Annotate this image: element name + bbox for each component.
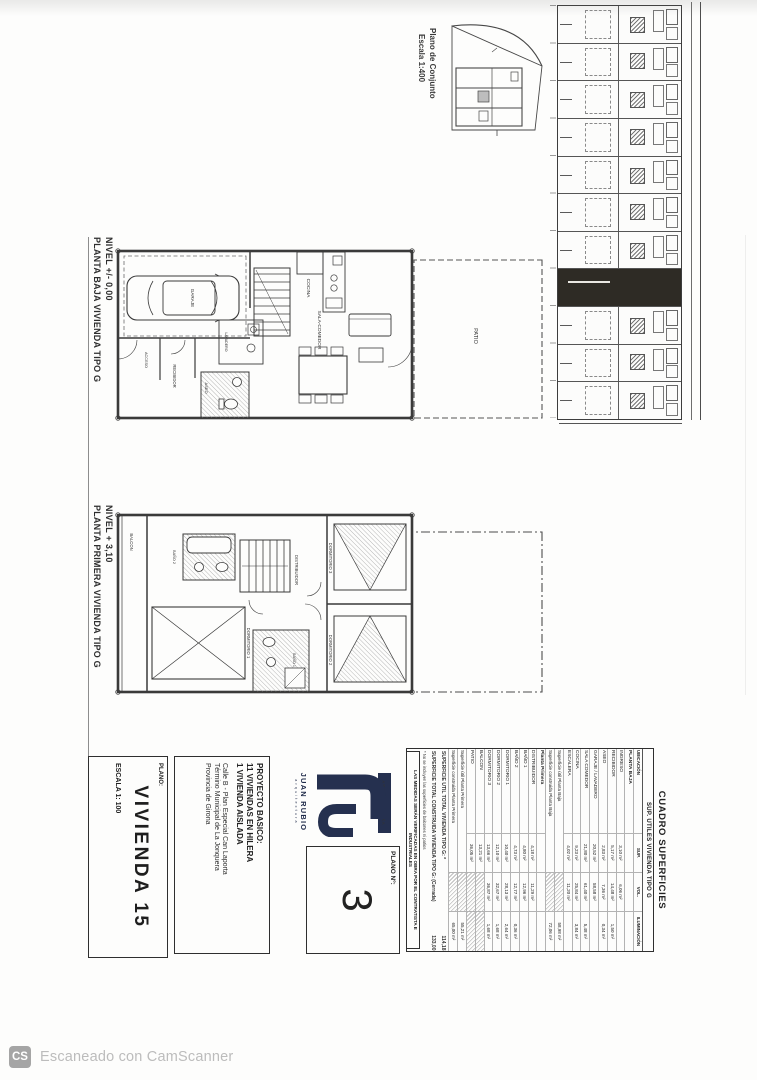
strip-end-line <box>559 423 682 424</box>
room-label-dormitorio-3: DORMITORIO 3 <box>328 543 333 574</box>
row-house-unit-highlighted <box>558 269 681 307</box>
areas-table: CUADRO SUPERFICIES SUP. UTILES VIVIENDA … <box>407 748 667 952</box>
room-label-distribuidor: DISTRIBUIDOR <box>294 555 299 585</box>
scanned-architectural-sheet: Plano de Conjunto Escala 1:400 <box>0 0 757 1080</box>
camscanner-badge-icon: CS <box>9 1046 31 1068</box>
table-row: Planta Primera <box>536 749 545 951</box>
architect-logo-glyph: ARQUITECTURA <box>315 767 393 837</box>
table-row: SUPERFICIE TOTAL CONSTRUIDA VIVIENDA TIP… <box>428 749 438 951</box>
scan-paper-crease <box>745 235 746 695</box>
first-floor-plan: DORMITORIO 3 DORMITORIO 2 DISTRIBUIDOR B… <box>115 512 545 695</box>
room-label-dormitorio-2: DORMITORIO 2 <box>328 635 333 666</box>
logo-name-text: JUAN RUBIO <box>299 758 308 846</box>
project-address-3: Provincia de Girona <box>205 763 212 947</box>
row-house-unit <box>558 232 681 270</box>
project-line-2: 1 VIVIENDA AISLADA <box>235 763 244 947</box>
table-row: INGRESO3,10 m²6,06 m² <box>616 749 625 951</box>
sheet-number-box: PLANO Nº: 3 <box>306 846 400 954</box>
table-row: ASEO2,83 m²7,36 m²0,34 m² <box>598 749 607 951</box>
table-row: DORMITORIO 313,66 m²36,87 m²1,68 m² <box>484 749 493 951</box>
table-row: GARAJE / LAVADERO20,52 m²58,58 m² <box>589 749 598 951</box>
patio-boundary <box>414 260 542 418</box>
table-row: DORMITORIO 212,10 m²32,67 m²1,68 m² <box>492 749 501 951</box>
first-floor-caption-line1: NIVEL + 3,10 <box>104 505 114 563</box>
row-houses-site-strip <box>557 5 682 420</box>
row-house-unit <box>558 81 681 119</box>
patio-void-boundary <box>412 532 542 692</box>
table-row: RECIBIDOR5,17 m²14,48 m²1,50 m² <box>607 749 616 951</box>
row-house-unit <box>558 119 681 157</box>
table-row: SALA COMEDOR21,80 m²61,40 m²5,48 m² <box>580 749 589 951</box>
table-row: PATIO36,05 m² <box>466 749 475 951</box>
room-label-acceso: ACCESO <box>144 352 148 368</box>
row-house-unit <box>558 157 681 195</box>
bed-dormitorio-1 <box>152 607 245 679</box>
toilet-room <box>201 372 249 418</box>
room-label-sala-comedor: SALA-COMEDOR <box>316 311 322 350</box>
site-overview-sketch <box>440 12 552 137</box>
project-line-1: 11 VIVIENDAS EN HILERA <box>245 763 254 947</box>
sheet-scale-text: ESCALA 1: 100 <box>114 763 121 951</box>
table-row: DORMITORIO 110,40 m²28,13 m²2,64 m² <box>501 749 510 951</box>
room-label-patio: PATIO <box>472 328 478 344</box>
car-symbol <box>127 274 239 322</box>
table-row: ESCALERA4,02 m²11,20 m² <box>563 749 572 951</box>
areas-table-frame: SUP. UTILES VIVIENDA TIPO G UBICACIÓNSUP… <box>406 748 654 952</box>
areas-table-footnote: * No se incluyen las superficies de balc… <box>421 749 428 951</box>
camscanner-watermark-text: Escaneado con CamScanner <box>40 1049 233 1065</box>
architect-logo: ARQUITECTURA JUAN RUBIO arquitectura <box>279 758 393 846</box>
bathroom-2 <box>183 534 235 580</box>
street-line-outer <box>700 2 701 420</box>
table-row: Superficie útil Planta Baja58,98 m² <box>554 749 563 951</box>
row-house-unit <box>558 194 681 232</box>
sheet-number-label: PLANO Nº: <box>389 847 399 953</box>
bed-dormitorio-3 <box>334 524 406 590</box>
row-house-unit <box>558 44 681 82</box>
site-overview-caption-line1: Plano de Conjunto <box>428 28 437 99</box>
project-address-2: Término Municipal de La Jonquera <box>213 763 220 947</box>
table-row: DISTRIBUIDOR4,18 m²11,29 m² <box>528 749 537 951</box>
sheet-title-label: PLANO: <box>157 763 163 951</box>
table-row: PLANTA BAJA <box>624 749 633 951</box>
room-label-lavadero: LAVADERO <box>224 332 228 351</box>
row-house-unit <box>558 307 681 345</box>
table-row: SUPERFICIE UTIL TOTAL VIVIENDA TIPO G: *… <box>438 749 448 951</box>
room-label-cocina: COCINA <box>305 279 311 298</box>
room-label-recibidor: RECIBIDOR <box>172 364 177 387</box>
bed-dormitorio-2 <box>334 616 406 682</box>
stairs-ground-floor <box>254 268 290 336</box>
room-label-dormitorio-1: DORMITORIO 1 <box>246 628 251 659</box>
table-row: Superficie útil Planta Primera55,21 m² <box>457 749 466 951</box>
scan-shadow-top-edge <box>0 0 757 16</box>
table-row: BAÑO 14,80 m²12,96 m² <box>519 749 528 951</box>
room-label-balcon: BALCON <box>129 533 134 550</box>
bathroom-1 <box>253 630 309 692</box>
areas-table-subtitle: SUP. UTILES VIVIENDA TIPO G <box>642 749 653 951</box>
table-row: COCINA9,23 m²25,84 m²3,84 m² <box>572 749 581 951</box>
project-box: PROYECTO BASICO: 11 VIVIENDAS EN HILERA … <box>174 756 270 954</box>
sheet-number-value: 3 <box>333 847 381 953</box>
first-floor-caption-line2: PLANTA PRIMERA VIVIENDA TIPO G <box>92 505 102 668</box>
stairs-first-floor <box>240 540 290 592</box>
site-overview-caption-line2: Escala 1:400 <box>417 34 426 82</box>
ground-floor-plan: PATIO GARAJE LAVADERO COCINA SALA-COMEDO… <box>115 248 545 421</box>
rotated-drawing-sheet: Plano de Conjunto Escala 1:400 <box>0 0 757 1080</box>
project-heading: PROYECTO BASICO: <box>255 763 264 947</box>
table-row: BALCON13,21 m² <box>475 749 484 951</box>
row-house-unit <box>558 345 681 383</box>
areas-table-disclaimer: LAS MEDIDAS SERÁN VERIFICADAS EN OBRA PO… <box>406 751 420 949</box>
areas-table-grid: UBICACIÓNSUP.VOL.ILUMINACIÓNPLANTA BAJAI… <box>448 749 642 951</box>
corner-markers <box>116 249 415 421</box>
street-line-inner <box>691 2 692 420</box>
sheet-title-box: PLANO: VIVIENDA 15 ESCALA 1: 100 <box>88 756 168 958</box>
project-address-1: Calle B - Plan Especial Can Laporta <box>222 763 229 947</box>
areas-table-title: CUADRO SUPERFICIES <box>656 748 667 952</box>
living-room-furniture <box>299 314 391 403</box>
areas-table-grand-totals: SUPERFICIE UTIL TOTAL VIVIENDA TIPO G: *… <box>428 749 448 951</box>
table-row: BAÑO 24,73 m²12,77 m²0,36 m² <box>510 749 519 951</box>
ground-floor-caption-line2: PLANTA BAJA VIVIENDA TIPO G <box>92 237 102 382</box>
table-row: UBICACIÓNSUP.VOL.ILUMINACIÓN <box>633 749 642 951</box>
room-label-bano-2: BAÑO 2 <box>172 550 177 564</box>
logo-subtitle-text: arquitectura <box>294 758 298 846</box>
row-house-unit <box>558 382 681 419</box>
ground-floor-caption-line1: NIVEL +/- 0,00 <box>104 237 114 301</box>
table-row: Superficie construida Planta Primera65,0… <box>448 749 457 951</box>
room-label-garaje: GARAJE <box>190 289 195 307</box>
sheet-title-text: VIVIENDA 15 <box>129 763 151 951</box>
room-label-aseo: ASEO <box>204 382 209 393</box>
table-row: Superficie construida Planta Baja72,06 m… <box>545 749 554 951</box>
camscanner-watermark: CS Escaneado con CamScanner <box>9 1046 233 1068</box>
